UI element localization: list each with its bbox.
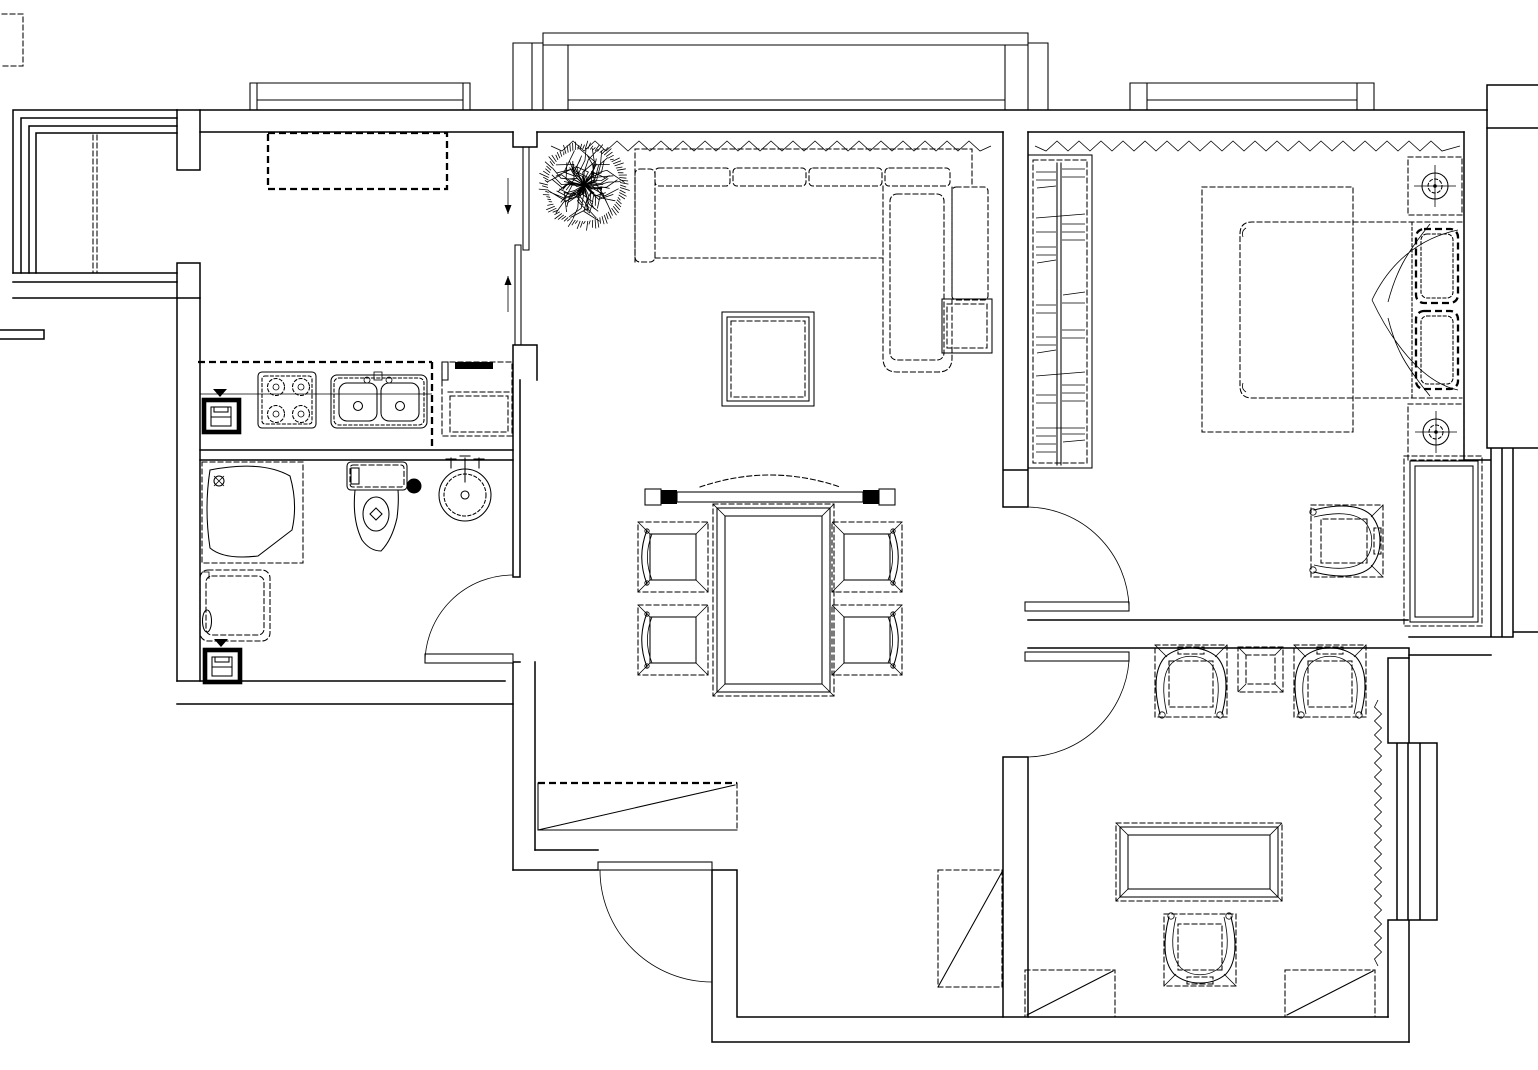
toilet (347, 462, 422, 551)
bathroom-door (425, 575, 513, 663)
bedroom-armchair (1310, 505, 1383, 577)
doors (425, 147, 1129, 982)
washbasin (439, 456, 491, 521)
gas-stove (258, 372, 316, 428)
side-table (1238, 647, 1283, 692)
floorplan-page (0, 0, 1538, 1070)
sofa-side-table (942, 299, 992, 353)
entry-door (598, 862, 712, 982)
shoe-cabinet (538, 783, 737, 830)
tall-cabinet (442, 362, 512, 436)
dining-chair (638, 605, 708, 675)
armchair (1164, 913, 1236, 986)
kitchen-sliding-door (505, 147, 530, 345)
floor-drain-icon (205, 639, 240, 682)
pillow (1416, 229, 1458, 303)
wardrobe (1028, 155, 1092, 468)
tea-table (1116, 823, 1282, 901)
hall-cabinet (938, 870, 1002, 987)
floorplan-canvas (0, 0, 1538, 1070)
nightstand (1408, 404, 1464, 460)
coffee-table (722, 312, 814, 406)
bedroom (1028, 141, 1482, 626)
floor-drain-icon (204, 389, 239, 432)
dining-table (713, 504, 834, 696)
washing-machine (200, 570, 270, 641)
nightstand (1408, 157, 1462, 215)
entry-hallway (538, 783, 1002, 987)
living-bay-window (513, 33, 1048, 110)
curtain-bedroom (1035, 141, 1460, 151)
corner-cabinet (1025, 970, 1115, 1017)
bathroom (200, 456, 491, 682)
overhead-cabinet (268, 133, 447, 189)
study-door (1025, 652, 1129, 757)
curtain-study (1375, 700, 1382, 966)
pillow (1416, 311, 1458, 389)
dining-chair (638, 522, 708, 592)
double-sink (331, 372, 427, 428)
console-bar (645, 475, 895, 505)
living-room (539, 141, 992, 406)
balcony-partition (93, 135, 97, 273)
dining-chair (832, 605, 902, 675)
bedroom-door (1025, 507, 1129, 611)
bedroom-window (1130, 83, 1374, 110)
bedside-lamp-icon (1414, 165, 1456, 207)
kitchen (198, 133, 512, 450)
sectional-sofa (635, 149, 988, 372)
bedside-lamp-icon (1415, 411, 1457, 453)
dresser (1404, 456, 1482, 626)
slide-arrow-up-icon (505, 276, 512, 312)
armchair (1155, 645, 1227, 718)
plant-icon (539, 141, 630, 231)
windows (93, 33, 1374, 273)
corner-shower (202, 462, 303, 563)
study-lounge (1025, 645, 1382, 1017)
double-bed (1240, 222, 1462, 398)
slide-arrow-down-icon (505, 178, 512, 214)
dining-chair (832, 522, 902, 592)
carpet (1202, 187, 1353, 432)
corner-column (2, 14, 23, 66)
kitchen-window (250, 83, 470, 110)
dining-area (638, 475, 902, 696)
corner-cabinet (1285, 970, 1375, 1017)
armchair (1294, 645, 1366, 718)
